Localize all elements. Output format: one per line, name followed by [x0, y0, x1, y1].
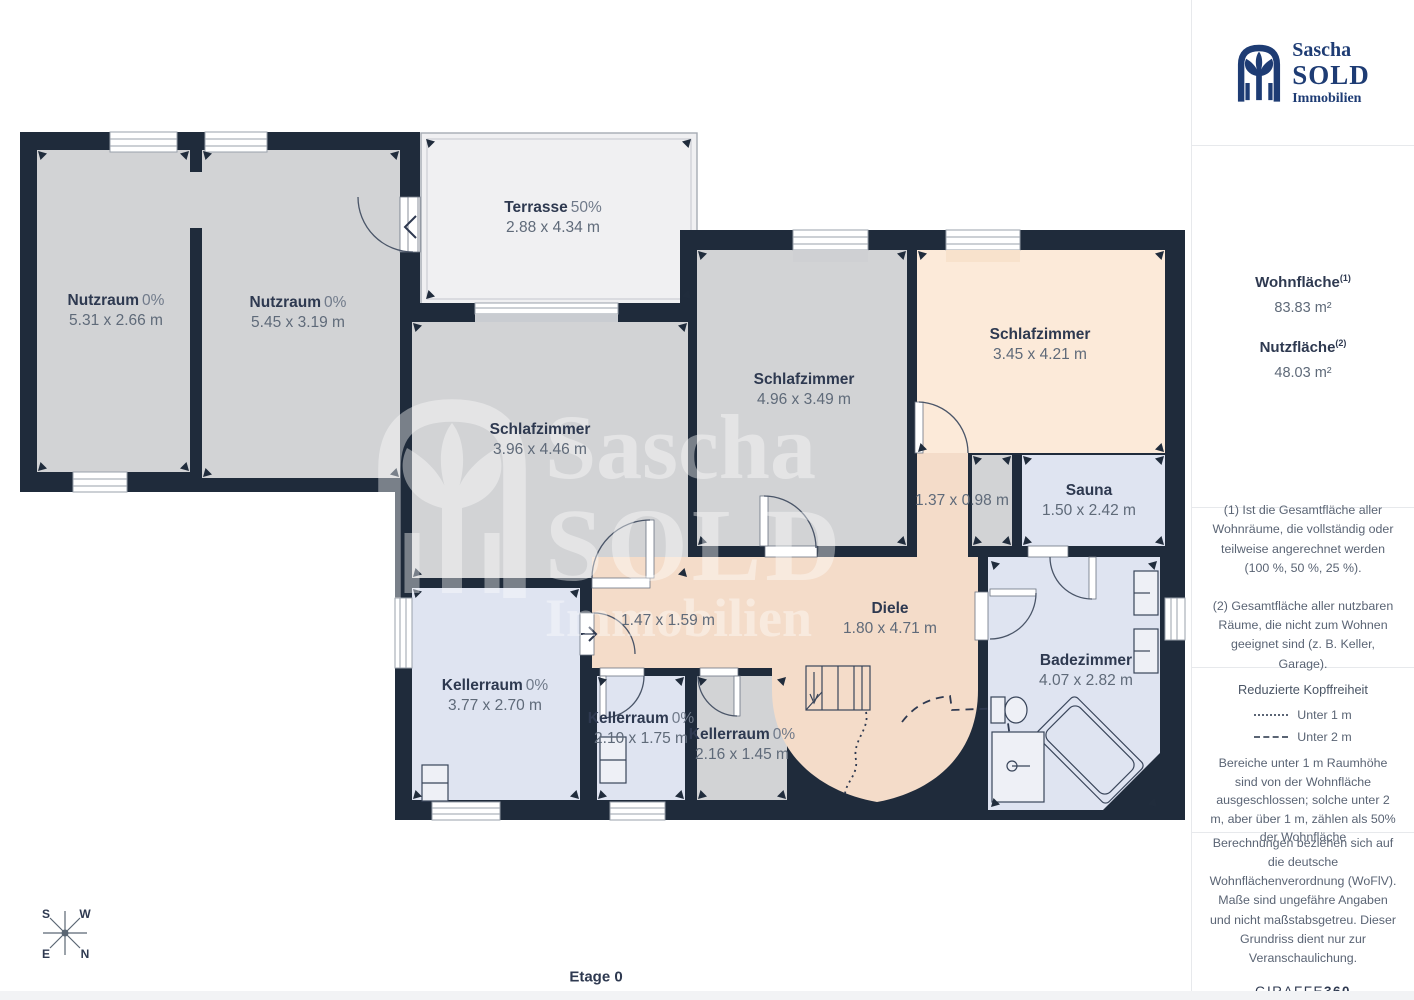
dashed-line-icon — [1254, 736, 1288, 738]
nutzflaeche-label: Nutzfläche(2) — [1260, 338, 1347, 356]
logo-line3: Immobilien — [1292, 92, 1370, 106]
footnote-2: (2) Gesamtfläche aller nutzbaren Räume, … — [1209, 597, 1397, 674]
compass-icon: S W E N — [42, 907, 91, 961]
room-label-kellerraum-3: Kellerraum0% 2.16 x 1.45 m — [689, 725, 795, 765]
watermark-line2: SOLD — [545, 488, 844, 603]
headroom-card: Reduzierte Kopffreiheit Unter 1 m Unter … — [1192, 668, 1414, 833]
legend-under-2m: Unter 2 m — [1208, 730, 1398, 744]
room-label-diele: Diele 1.80 x 4.71 m — [843, 599, 937, 639]
room-label-nutzraum-1: Nutzraum0% 5.31 x 2.66 m — [68, 291, 165, 331]
wohnflaeche-label: Wohnfläche(1) — [1255, 273, 1351, 291]
floorplan-canvas: Sascha SOLD Immobilien S W E N — [0, 0, 1191, 1000]
room-label-schlafzimmer-2: Schlafzimmer 4.96 x 3.49 m — [754, 370, 855, 410]
room-label-flur: 1.47 x 1.59 m — [621, 611, 715, 631]
compass-s: S — [42, 907, 50, 921]
room-label-nutzraum-2: Nutzraum0% 5.45 x 3.19 m — [250, 293, 347, 333]
page-bottom-strip — [0, 991, 1414, 1000]
logo-card: Sascha SOLD Immobilien — [1192, 0, 1414, 146]
room-label-kellerraum-1: Kellerraum0% 3.77 x 2.70 m — [442, 676, 548, 716]
room-label-badezimmer: Badezimmer 4.07 x 2.82 m — [1039, 651, 1133, 691]
compass-n: N — [81, 947, 90, 961]
room-label-flur-klein: 1.37 x 0.98 m — [915, 491, 1009, 511]
nutzflaeche-value: 48.03 m² — [1274, 365, 1331, 381]
logo-window-tree-icon — [1236, 43, 1282, 103]
wohnflaeche-value: 83.83 m² — [1274, 300, 1331, 316]
floor-label: Etage 0 — [569, 969, 622, 986]
floorplan-page: Sascha SOLD Immobilien S W E N — [0, 0, 1414, 1000]
company-logo: Sascha SOLD Immobilien — [1236, 40, 1370, 106]
room-label-schlafzimmer-3: Schlafzimmer 3.45 x 4.21 m — [990, 325, 1091, 365]
logo-line2: SOLD — [1292, 62, 1370, 89]
footnotes-card: (1) Ist die Gesamtfläche aller Wohnräume… — [1192, 508, 1414, 668]
room-label-schlafzimmer-1: Schlafzimmer 3.96 x 4.46 m — [490, 420, 591, 460]
disclaimer-card: Berechnungen beziehen sich auf die deuts… — [1192, 833, 1414, 1000]
dotted-line-icon — [1254, 714, 1288, 716]
headroom-title: Reduzierte Kopffreiheit — [1208, 682, 1398, 697]
areas-card: Wohnfläche(1) 83.83 m² Nutzfläche(2) 48.… — [1192, 146, 1414, 508]
room-label-terrasse: Terrasse50% 2.88 x 4.34 m — [504, 198, 602, 238]
compass-w: W — [79, 907, 91, 921]
footnote-1: (1) Ist die Gesamtfläche aller Wohnräume… — [1209, 501, 1397, 578]
compass-e: E — [42, 947, 50, 961]
room-label-sauna: Sauna 1.50 x 2.42 m — [1042, 481, 1136, 521]
disclaimer-text: Berechnungen beziehen sich auf die deuts… — [1208, 834, 1398, 969]
logo-line1: Sascha — [1292, 40, 1370, 60]
floorplan-drawing: Sascha SOLD Immobilien S W E N — [0, 0, 1191, 1000]
legend-under-1m: Unter 1 m — [1208, 708, 1398, 722]
info-sidebar: Sascha SOLD Immobilien Wohnfläche(1) 83.… — [1191, 0, 1414, 1000]
room-label-kellerraum-2: Kellerraum0% 2.10 x 1.75 m — [588, 709, 694, 749]
